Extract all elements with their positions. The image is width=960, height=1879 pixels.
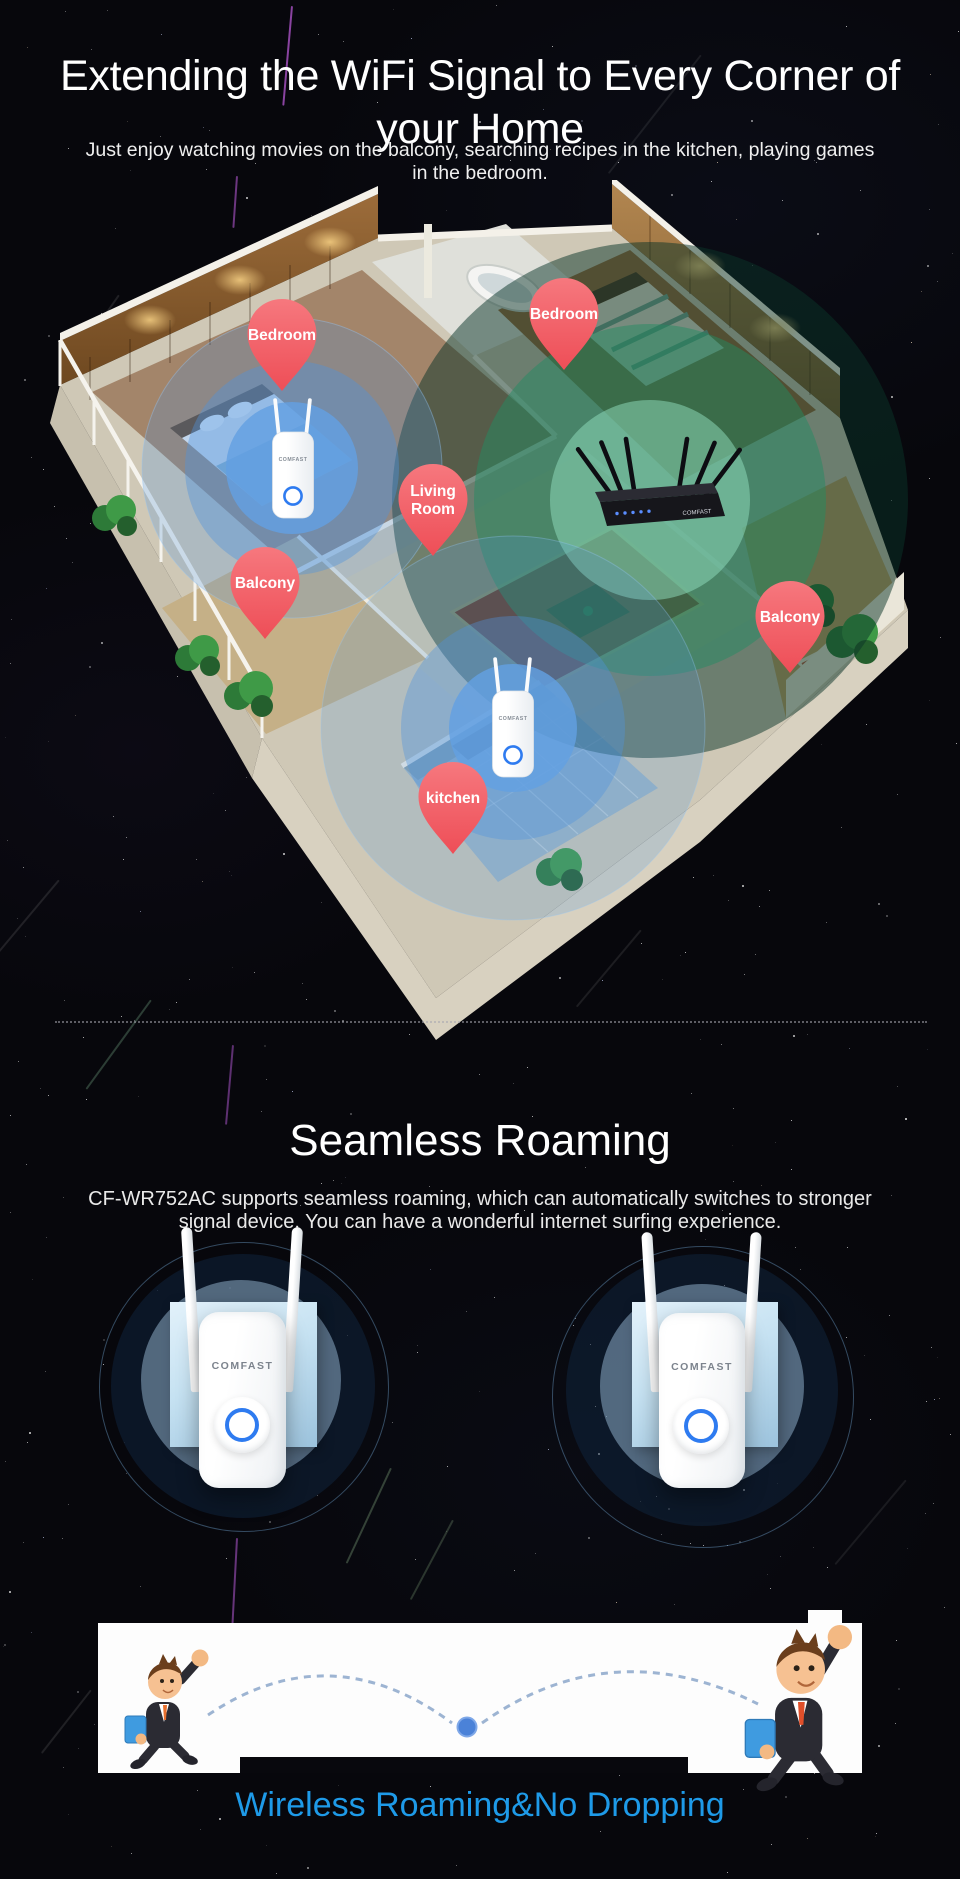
page-subtitle: Just enjoy watching movies on the balcon… xyxy=(0,139,960,185)
page-title-line1: Extending the WiFi Signal to Every Corne… xyxy=(0,50,960,103)
ring-button xyxy=(684,1409,718,1443)
extender-brand-label: COMFAST xyxy=(279,457,308,463)
pin-label: Bedroom xyxy=(248,327,316,344)
roaming-node-dot xyxy=(458,1718,477,1737)
roaming-description: CF-WR752AC supports seamless roaming, wh… xyxy=(0,1188,960,1234)
pin-label: Balcony xyxy=(760,609,821,626)
page-subtitle-line1: Just enjoy watching movies on the balcon… xyxy=(0,139,960,162)
pin-label: Bedroom xyxy=(530,306,598,323)
roaming-description-line2: signal device. You can have a wonderful … xyxy=(0,1211,960,1234)
comfast-product-page: Extending the WiFi Signal to Every Corne… xyxy=(0,0,960,1879)
pin-label: kitchen xyxy=(426,790,480,807)
extender-ring-button xyxy=(284,487,301,504)
roaming-path xyxy=(208,1672,758,1737)
floorplan-illustration: COMFAST COMFAST COMFAST Bedroom Bedroom xyxy=(0,180,960,1060)
extender-brand-label: COMFAST xyxy=(499,716,528,722)
roaming-description-line1: CF-WR752AC supports seamless roaming, wh… xyxy=(0,1188,960,1211)
streak-green xyxy=(410,1520,454,1600)
cartoon-man-left xyxy=(125,1650,209,1771)
pin-label-line2: Room xyxy=(411,501,455,518)
pin-label-line1: Living xyxy=(410,483,456,500)
extender-ring-button xyxy=(504,746,521,763)
cartoon-man-right xyxy=(745,1625,852,1794)
streak-white xyxy=(834,1480,906,1565)
ring-button xyxy=(225,1408,259,1442)
page-subtitle-line2: in the bedroom. xyxy=(0,162,960,185)
extender-brand-label: COMFAST xyxy=(659,1361,745,1373)
banner-caption: Wireless Roaming&No Dropping xyxy=(98,1786,862,1825)
section-divider xyxy=(55,1021,927,1023)
extender-brand-label: COMFAST xyxy=(199,1360,286,1372)
pin-label: Balcony xyxy=(235,575,296,592)
roaming-title: Seamless Roaming xyxy=(0,1116,960,1166)
